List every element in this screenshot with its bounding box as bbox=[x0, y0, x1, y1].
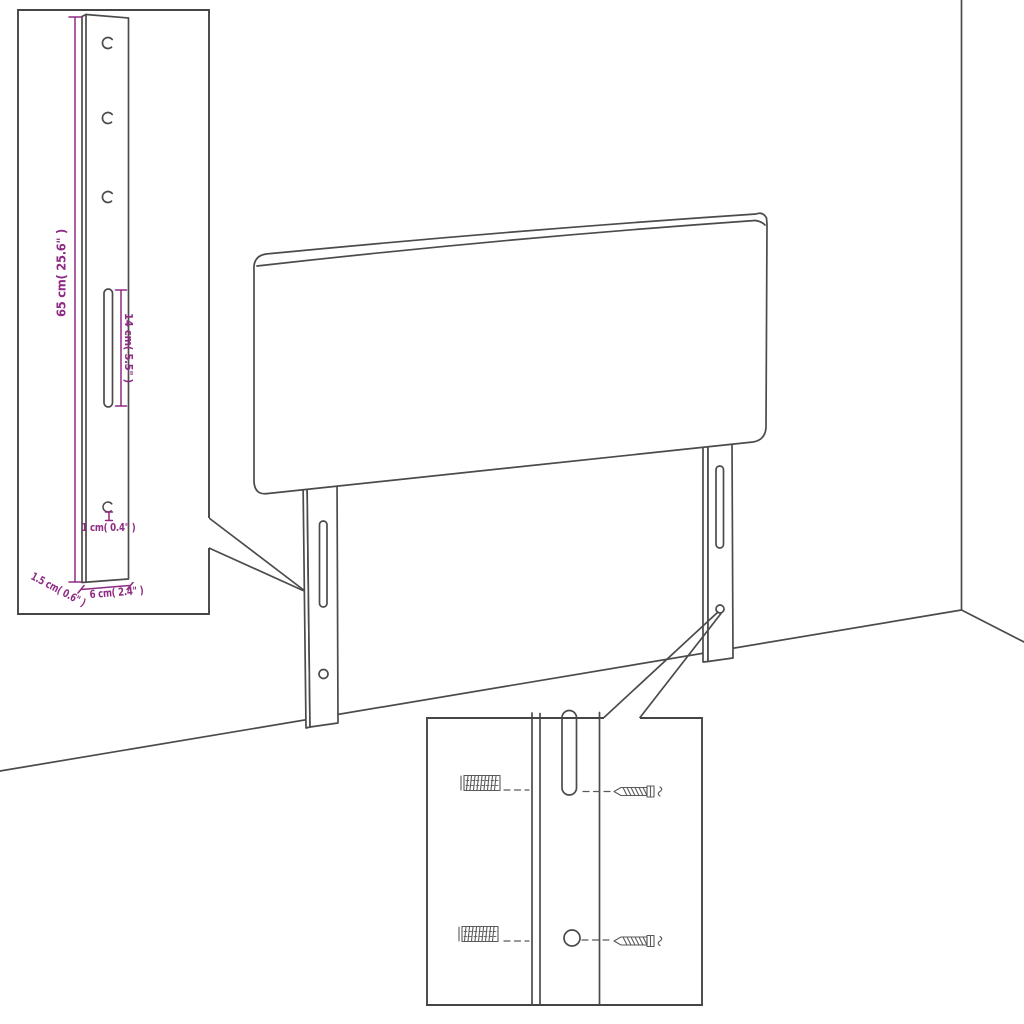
left-leg-front-face bbox=[307, 475, 338, 727]
dim-height-label: 65 cm( 25.6" ) bbox=[55, 229, 69, 317]
mounting-callout-line-left bbox=[604, 612, 718, 718]
dim-hole-diameter-label: 1 cm( 0.4" ) bbox=[82, 521, 136, 534]
dim-slot-length-label: 14 cm( 5.5" ) bbox=[122, 313, 135, 383]
mounting-callout-line-right bbox=[640, 614, 721, 718]
floor-line-right bbox=[962, 610, 1024, 642]
headboard-right-leg bbox=[703, 440, 733, 662]
right-leg-front-face bbox=[708, 440, 733, 662]
headboard-panel bbox=[254, 213, 767, 493]
panel-outline bbox=[254, 213, 767, 493]
headboard-left-leg bbox=[303, 475, 338, 728]
callout-wedges bbox=[209, 518, 721, 718]
mounting-detail-inset bbox=[427, 711, 702, 1006]
headboard-assembly-diagram: 65 cm( 25.6" ) 14 cm( 5.5" ) 1 cm( 0.4" … bbox=[0, 0, 1024, 1024]
diagram-canvas: 65 cm( 25.6" ) 14 cm( 5.5" ) 1 cm( 0.4" … bbox=[0, 0, 1024, 1024]
bracket-detail-inset: 65 cm( 25.6" ) 14 cm( 5.5" ) 1 cm( 0.4" … bbox=[18, 10, 209, 614]
